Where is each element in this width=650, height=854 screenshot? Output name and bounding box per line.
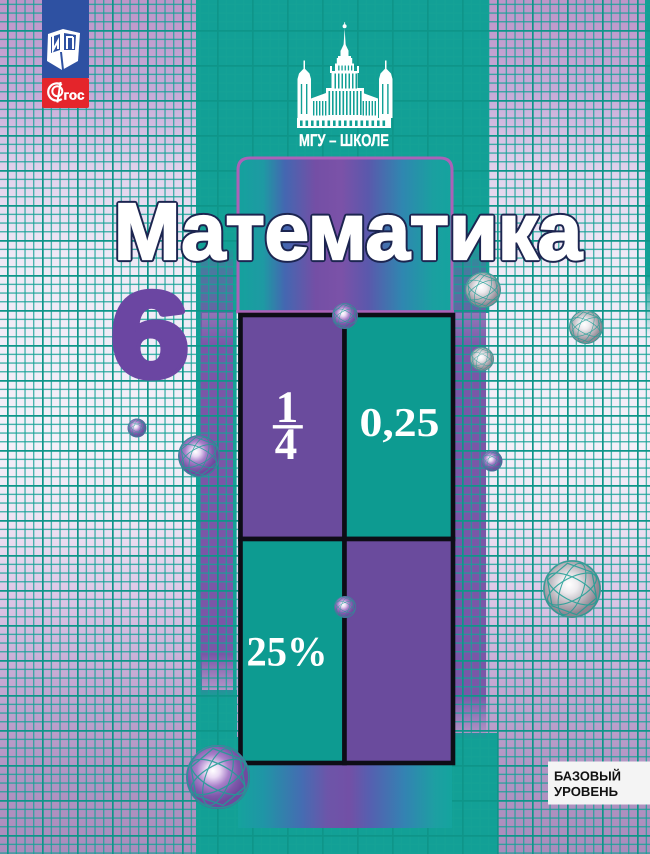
svg-text:МГУ – ШКОЛЕ: МГУ – ШКОЛЕ: [299, 131, 389, 150]
svg-text:гос: гос: [64, 88, 85, 103]
svg-text:БАЗОВЫЙ: БАЗОВЫЙ: [554, 769, 621, 784]
svg-text:25%: 25%: [247, 630, 328, 676]
svg-text:6: 6: [111, 268, 188, 402]
svg-text:4: 4: [275, 419, 298, 469]
svg-text:УРОВЕНЬ: УРОВЕНЬ: [554, 784, 618, 799]
svg-text:Математика: Математика: [114, 187, 583, 276]
svg-text:0,25: 0,25: [360, 399, 440, 445]
